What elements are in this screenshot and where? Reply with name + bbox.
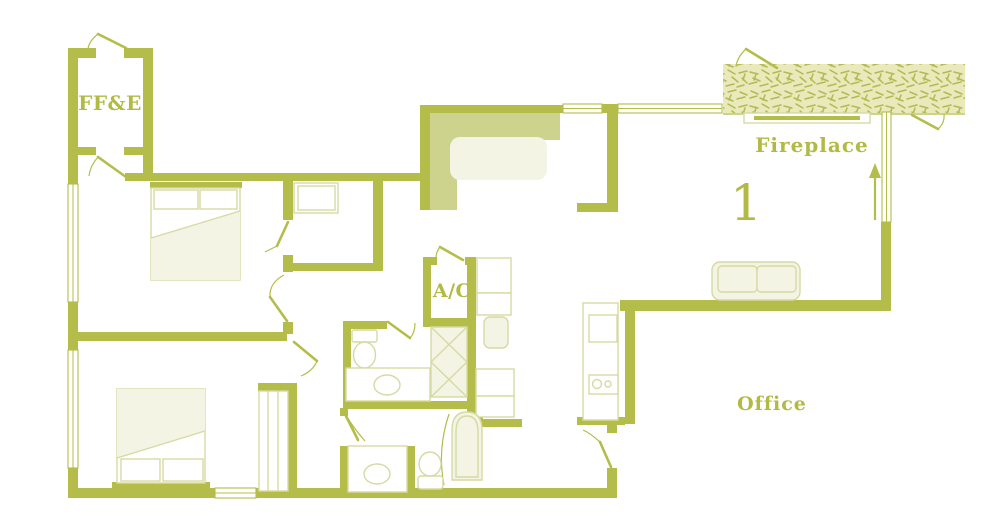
- window: [618, 104, 722, 113]
- door-entry: [583, 430, 611, 467]
- fireplace: [744, 113, 870, 123]
- door-ffe-bottom: [89, 157, 126, 177]
- kitchen-sink: [484, 317, 508, 348]
- window: [563, 104, 602, 113]
- window: [68, 184, 78, 302]
- toilet-2: [418, 452, 443, 489]
- door-closet-1: [265, 222, 288, 252]
- bed-2: [112, 389, 210, 488]
- fridge: [589, 315, 617, 342]
- sink-1: [374, 375, 400, 395]
- door-ac-closet: [436, 247, 463, 260]
- floor-plan: FF&E Fireplace A/C Office 1: [0, 0, 1000, 532]
- door-bathroom-2: [345, 414, 365, 441]
- closet-sliding-doors: [259, 391, 288, 491]
- door-bedroom-2: [294, 342, 317, 376]
- bed-1: [150, 182, 242, 280]
- window: [215, 488, 256, 498]
- window: [68, 350, 78, 468]
- toilet-1: [352, 330, 377, 368]
- sofa: [712, 262, 800, 300]
- label-fireplace: Fireplace: [755, 133, 869, 157]
- label-ffe: FF&E: [78, 91, 142, 115]
- unit-number: 1: [730, 174, 762, 232]
- floor-plan-page: FF&E Fireplace A/C Office 1: [0, 0, 1000, 532]
- vanity-2: [348, 446, 407, 492]
- closet-dresser: [294, 183, 338, 213]
- sink-2: [364, 464, 390, 484]
- door-ffe-top: [88, 34, 126, 49]
- deck-hatch-area: [723, 64, 965, 114]
- door-bathroom-1: [388, 322, 415, 338]
- pantry-cabinets: [476, 258, 514, 417]
- entry-arrow: [869, 163, 881, 220]
- label-office: Office: [737, 393, 807, 415]
- deck-patio: [723, 64, 965, 114]
- dining-seat: [450, 137, 547, 180]
- kitchen-counter: [583, 303, 618, 420]
- bathtub: [452, 412, 482, 480]
- vanity-1: [346, 368, 430, 401]
- door-bedroom-1: [270, 275, 287, 321]
- shower: [431, 327, 467, 397]
- window: [882, 112, 891, 222]
- label-ac: A/C: [432, 280, 471, 302]
- door-deck-right: [912, 114, 944, 129]
- stove: [589, 375, 618, 394]
- door-tub-compartment: [441, 414, 449, 485]
